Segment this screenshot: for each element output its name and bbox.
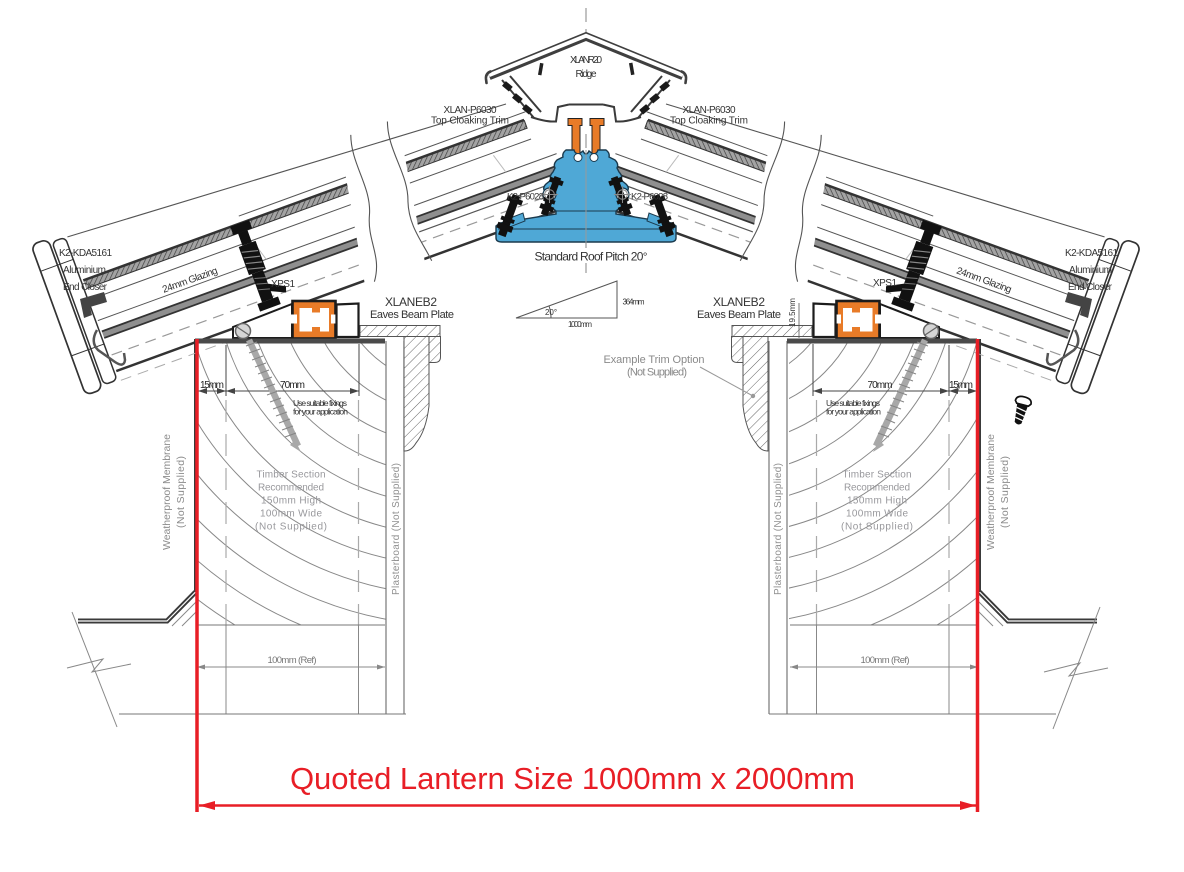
svg-text:XLANEB2: XLANEB2 [385, 295, 437, 309]
svg-text:15mm: 15mm [200, 380, 224, 391]
svg-text:Top Cloaking Trim: Top Cloaking Trim [670, 116, 748, 127]
svg-text:Weatherproof Membrane: Weatherproof Membrane [985, 434, 997, 550]
svg-text:Top Cloaking Trim: Top Cloaking Trim [431, 116, 509, 127]
svg-text:Weatherproof Membrane: Weatherproof Membrane [161, 434, 173, 550]
svg-text:Aluminium: Aluminium [63, 265, 106, 276]
svg-text:XPS1: XPS1 [271, 279, 295, 290]
svg-text:Plasterboard (Not Supplied): Plasterboard (Not Supplied) [773, 463, 784, 595]
svg-text:K2-P6028: K2-P6028 [631, 192, 668, 203]
svg-text:364mm: 364mm [623, 298, 645, 307]
svg-text:100mm Wide: 100mm Wide [846, 509, 908, 520]
svg-text:Eaves Beam Plate: Eaves Beam Plate [370, 309, 454, 321]
svg-text:1000mm: 1000mm [568, 320, 592, 329]
svg-text:Example Trim Option: Example Trim Option [604, 354, 705, 366]
svg-text:70mm: 70mm [868, 380, 893, 391]
svg-text:K2-P6028: K2-P6028 [507, 192, 544, 203]
svg-text:150mm High: 150mm High [847, 496, 907, 507]
svg-text:Timber Section: Timber Section [257, 470, 326, 481]
svg-text:Eaves Beam Plate: Eaves Beam Plate [697, 309, 781, 321]
svg-text:100mm (Ref): 100mm (Ref) [268, 655, 317, 666]
svg-text:Standard Roof Pitch 20°: Standard Roof Pitch 20° [535, 250, 648, 264]
svg-text:K2-KDA5161: K2-KDA5161 [59, 248, 112, 259]
svg-text:for your application: for your application [826, 407, 881, 417]
svg-text:150mm High: 150mm High [261, 496, 321, 507]
svg-text:End Closer: End Closer [63, 282, 108, 293]
svg-text:Recommended: Recommended [844, 483, 910, 494]
svg-text:XPS1: XPS1 [873, 278, 897, 289]
svg-text:100mm (Ref): 100mm (Ref) [861, 655, 910, 666]
svg-text:Plasterboard (Not Supplied): Plasterboard (Not Supplied) [391, 463, 402, 595]
svg-text:(Not Supplied): (Not Supplied) [627, 367, 687, 379]
svg-text:K2-KDA5161: K2-KDA5161 [1065, 248, 1118, 259]
svg-text:XLAN-P6030: XLAN-P6030 [444, 105, 497, 116]
svg-text:(Not Supplied): (Not Supplied) [175, 456, 187, 528]
svg-text:20°: 20° [545, 308, 557, 317]
svg-text:Timber Section: Timber Section [843, 470, 912, 481]
svg-text:End Closer: End Closer [1068, 282, 1113, 293]
svg-text:Ridge: Ridge [576, 69, 597, 80]
svg-text:XLANEB2: XLANEB2 [713, 295, 765, 309]
svg-text:Recommended: Recommended [258, 483, 324, 494]
svg-text:Aluminium: Aluminium [1069, 265, 1112, 276]
svg-text:(Not Supplied): (Not Supplied) [841, 522, 913, 533]
svg-text:15mm: 15mm [949, 380, 973, 391]
svg-text:19.5mm: 19.5mm [788, 298, 797, 327]
svg-text:70mm: 70mm [280, 380, 305, 391]
svg-text:XLANR20: XLANR20 [570, 55, 602, 66]
svg-text:(Not Supplied): (Not Supplied) [255, 522, 327, 533]
svg-text:(Not Supplied): (Not Supplied) [999, 456, 1011, 528]
svg-text:for your application: for your application [293, 407, 348, 417]
svg-text:XLAN-P6030: XLAN-P6030 [683, 105, 736, 116]
svg-text:Quoted Lantern Size 1000mm x 2: Quoted Lantern Size 1000mm x 2000mm [290, 761, 855, 796]
svg-text:100mm Wide: 100mm Wide [260, 509, 322, 520]
